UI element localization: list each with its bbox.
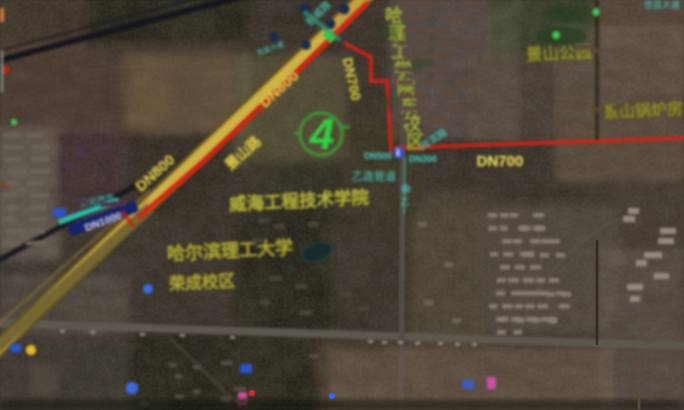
svg-text:DN500: DN500 <box>364 151 392 161</box>
svg-text:DN700: DN700 <box>477 153 524 170</box>
svg-text:⊕: ⊕ <box>401 181 412 196</box>
svg-text:乙连管道: 乙连管道 <box>352 169 396 183</box>
svg-text:世昌大道: 世昌大道 <box>644 0 680 10</box>
svg-text:4: 4 <box>309 110 334 159</box>
svg-text:东: 东 <box>400 95 418 116</box>
svg-text:乙: 乙 <box>400 197 409 207</box>
svg-text:DN300: DN300 <box>409 154 437 164</box>
